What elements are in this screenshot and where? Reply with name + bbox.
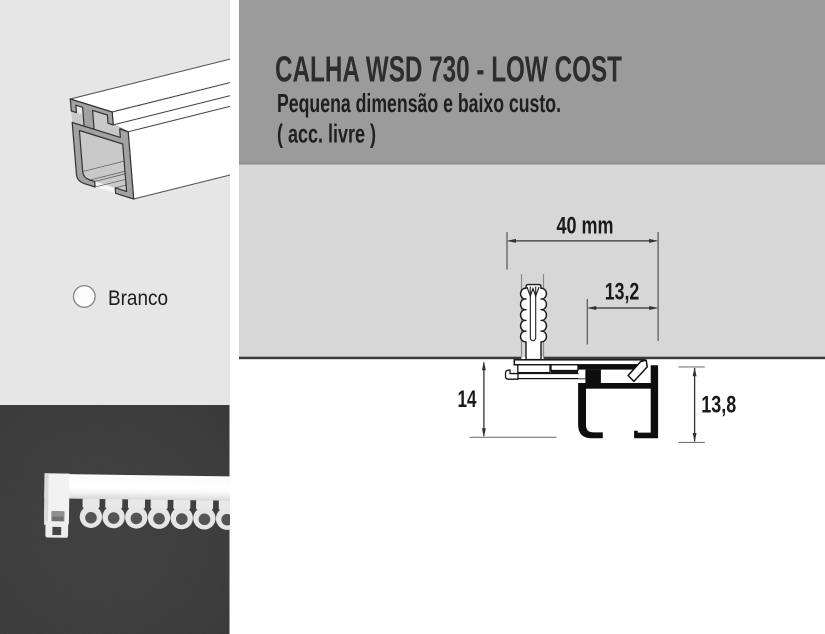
svg-text:( acc. livre ): ( acc. livre )	[277, 119, 376, 149]
svg-text:13,8: 13,8	[701, 391, 736, 418]
svg-text:13,2: 13,2	[604, 278, 639, 305]
svg-text:40 mm: 40 mm	[556, 213, 613, 240]
svg-text:Pequena dimensão e baixo custo: Pequena dimensão e baixo custo.	[277, 88, 561, 118]
svg-text:CALHA WSD 730 - LOW COST: CALHA WSD 730 - LOW COST	[275, 48, 622, 89]
svg-text:Branco: Branco	[108, 287, 168, 310]
svg-text:14: 14	[457, 386, 476, 413]
